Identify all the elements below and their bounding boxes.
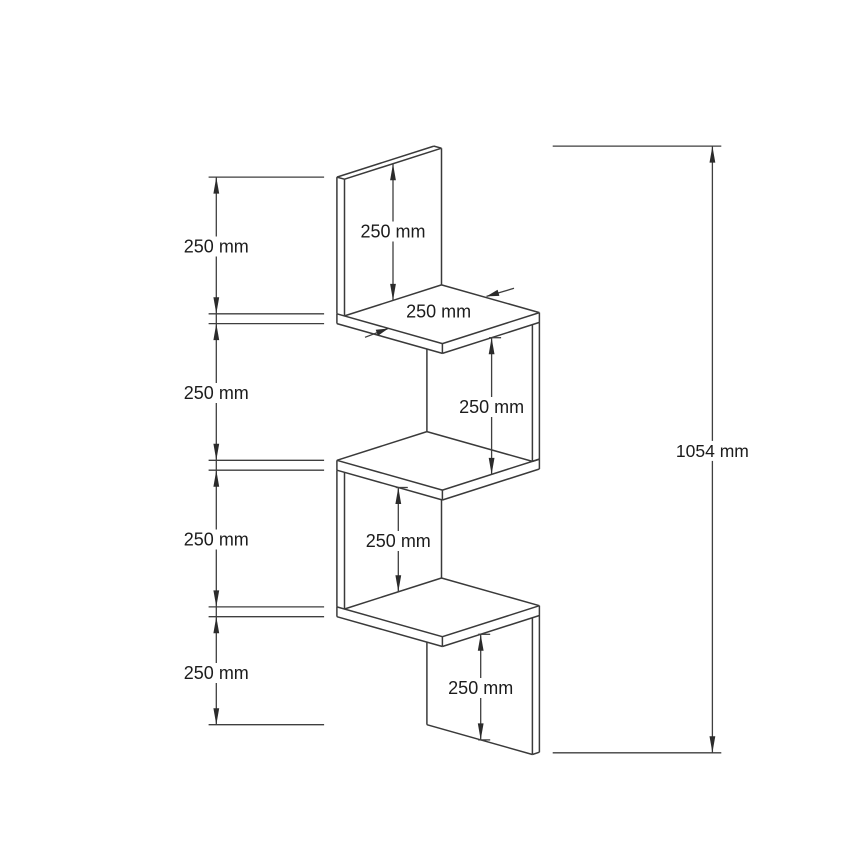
svg-text:250 mm: 250 mm [184,663,249,683]
svg-text:250 mm: 250 mm [406,302,471,322]
svg-text:250 mm: 250 mm [459,397,524,417]
svg-text:250 mm: 250 mm [366,531,431,551]
svg-text:1054 mm: 1054 mm [676,441,749,461]
svg-text:250 mm: 250 mm [448,678,513,698]
svg-text:250 mm: 250 mm [360,222,425,242]
svg-text:250 mm: 250 mm [184,383,249,403]
svg-text:250 mm: 250 mm [184,530,249,550]
svg-text:250 mm: 250 mm [184,237,249,257]
